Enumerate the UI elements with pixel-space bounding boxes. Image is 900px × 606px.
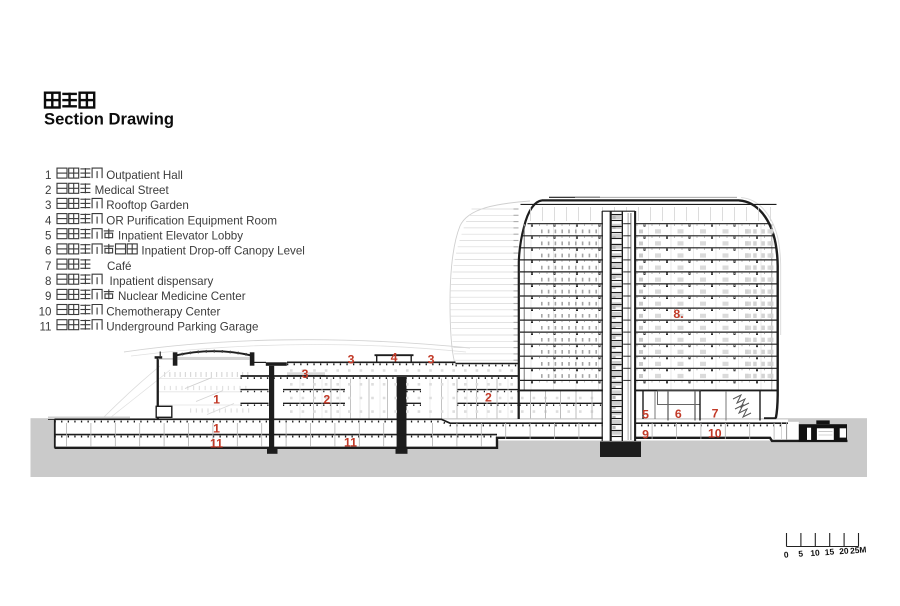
svg-text:2: 2 [45,184,51,197]
svg-text:Inpatient dispensary: Inpatient dispensary [110,275,214,288]
svg-text:3: 3 [348,352,355,366]
svg-text:Medical Street: Medical Street [95,184,170,197]
svg-text:4: 4 [391,350,398,364]
svg-text:2: 2 [485,390,492,404]
svg-text:7: 7 [45,260,51,273]
svg-text:Chemotherapy Center: Chemotherapy Center [106,305,220,318]
svg-text:3: 3 [302,367,309,381]
svg-text:20: 20 [839,545,849,556]
svg-text:Inpatient Drop-off Canopy Leve: Inpatient Drop-off Canopy Level [141,245,305,258]
svg-text:3: 3 [428,352,435,366]
svg-text:11: 11 [344,435,357,449]
svg-text:25M: 25M [850,544,867,555]
svg-text:10: 10 [810,547,820,558]
svg-text:Inpatient Elevator Lobby: Inpatient Elevator Lobby [118,230,243,243]
svg-text:Underground Parking Garage: Underground Parking Garage [106,321,258,334]
svg-text:Nuclear Medicine Center: Nuclear Medicine Center [118,290,246,303]
svg-text:Café: Café [107,260,132,273]
svg-text:5: 5 [45,230,51,243]
svg-text:10: 10 [708,426,722,440]
svg-text:1: 1 [45,169,51,182]
svg-text:6: 6 [45,245,51,258]
svg-text:1: 1 [213,392,220,406]
svg-text:7: 7 [712,406,719,420]
svg-text:15: 15 [824,546,834,557]
svg-text:5: 5 [642,407,649,421]
svg-text:Outpatient Hall: Outpatient Hall [106,169,183,182]
svg-text:10: 10 [39,305,52,318]
svg-text:Rooftop Garden: Rooftop Garden [106,199,189,212]
svg-text:Section Drawing: Section Drawing [44,110,174,129]
svg-text:11: 11 [210,436,223,450]
svg-text:11: 11 [39,321,51,334]
svg-text:9: 9 [642,427,649,441]
svg-text:9: 9 [45,290,51,303]
svg-text:2: 2 [323,392,330,406]
svg-text:3: 3 [45,199,51,212]
svg-text:4: 4 [45,214,52,227]
svg-text:8.: 8. [673,307,683,321]
svg-text:6: 6 [675,407,682,421]
svg-text:OR Purification Equipment Room: OR Purification Equipment Room [106,214,277,227]
svg-text:1: 1 [213,421,220,435]
svg-text:8: 8 [45,275,51,288]
